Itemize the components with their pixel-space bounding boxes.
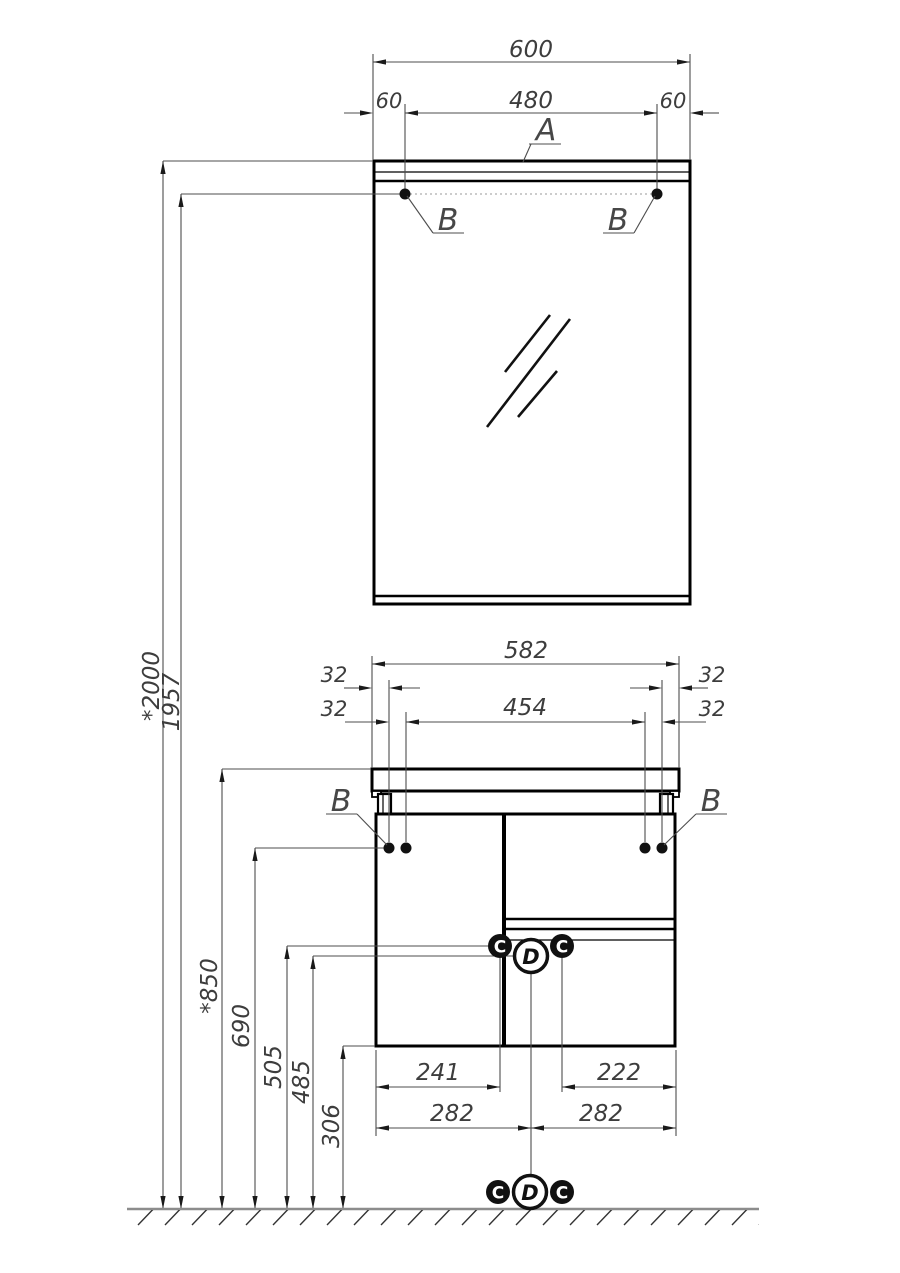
dim-pitch-right: 32 [699, 697, 726, 721]
dim-edge-left: 32 [321, 663, 348, 687]
dim-drain-left: 241 [416, 1060, 460, 1086]
mirror-mount-label-right: B [608, 203, 629, 238]
cabinet-mount-label-right: B [701, 784, 722, 819]
vanity-unit [372, 769, 679, 1046]
installation-drawing-page: C C D C D C A B B B B [0, 0, 900, 1273]
dim-pitch-left: 32 [321, 697, 348, 721]
cabinet-mount-hole-1 [384, 843, 395, 854]
label-a-leader [523, 144, 531, 162]
dim-half-left: 282 [430, 1101, 474, 1127]
worktop [372, 769, 679, 791]
hinge-marker-right-label: C [556, 938, 568, 958]
cabinet-mount-hole-4 [657, 843, 668, 854]
technical-drawing: C C D C D C A B B B B [0, 0, 900, 1273]
dim-cabinet-spacing: 454 [503, 695, 547, 721]
dim-mirror-offset-left: 60 [376, 89, 403, 113]
dim-mirror-offset-right: 60 [660, 89, 687, 113]
dim-drain-right: 222 [597, 1060, 641, 1086]
dim-height-mirror-mounts: 1957 [159, 672, 185, 731]
dim-height-drain: 485 [289, 1060, 315, 1104]
dim-cabinet-width: 582 [504, 638, 548, 664]
mirror-outline [374, 161, 690, 604]
dim-height-bottom: 306 [319, 1104, 345, 1148]
dim-edge-right: 32 [699, 663, 726, 687]
dim-height-cabinet-mounts: 690 [229, 1004, 255, 1048]
lamp-label: A [534, 113, 557, 148]
mirror-unit [374, 161, 690, 604]
floor-drain-label: D [521, 1181, 538, 1205]
cabinet-mount-label-left: B [331, 784, 352, 819]
mirror-mount-label-left: B [438, 203, 459, 238]
floor-hinge-right-label: C [556, 1184, 568, 1204]
dim-mirror-width: 600 [509, 37, 553, 63]
cabinet-mount-hole-3 [640, 843, 651, 854]
cabinet-mount-hole-2 [401, 843, 412, 854]
floor-hatching [127, 1210, 759, 1238]
dim-height-worktop: *850 [197, 958, 223, 1013]
drain-marker-label: D [522, 945, 539, 969]
mirror-mount-hole-right [652, 189, 663, 200]
floor-hinge-left-label: C [492, 1184, 504, 1204]
dim-height-hinge: 505 [261, 1045, 287, 1089]
hinge-marker-left-label: C [494, 938, 506, 958]
dim-half-right: 282 [579, 1101, 623, 1127]
dim-mirror-spacing: 480 [509, 88, 553, 114]
